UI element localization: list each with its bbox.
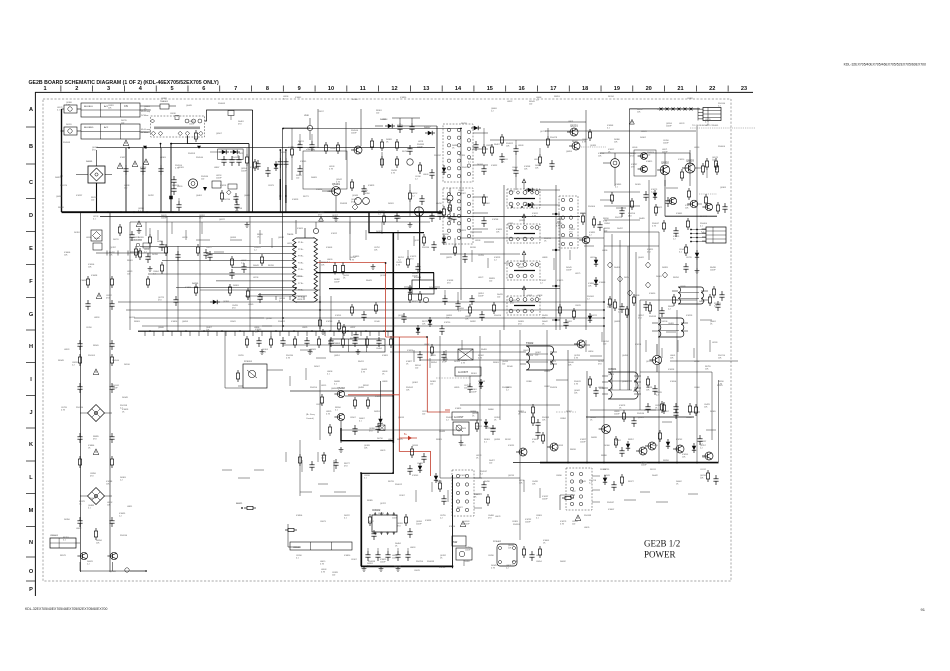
- svg-text:2.2: 2.2: [700, 443, 703, 445]
- svg-text:C6140: C6140: [374, 321, 380, 323]
- svg-text:F: F: [29, 279, 33, 285]
- svg-text:4.7K: 4.7K: [396, 264, 401, 266]
- svg-text:Q6268: Q6268: [230, 237, 236, 239]
- svg-text:0.1: 0.1: [134, 239, 137, 241]
- svg-text:0.1: 0.1: [138, 210, 141, 212]
- svg-text:L6572: L6572: [478, 277, 483, 279]
- svg-text:0.1: 0.1: [468, 161, 471, 163]
- svg-text:IC6504: IC6504: [670, 381, 677, 383]
- svg-text:2.2: 2.2: [668, 308, 671, 310]
- svg-text:L6553: L6553: [382, 119, 387, 121]
- svg-text:D6160: D6160: [604, 445, 610, 447]
- svg-text:P3 B+: P3 B+: [298, 256, 304, 258]
- svg-text:47U: 47U: [397, 525, 401, 527]
- svg-text:L6153: L6153: [590, 257, 595, 259]
- svg-text:L6935: L6935: [454, 387, 459, 389]
- svg-text:2.2: 2.2: [153, 273, 156, 275]
- svg-text:L6435: L6435: [584, 527, 589, 529]
- svg-text:R6350: R6350: [443, 199, 449, 201]
- svg-text:L6769: L6769: [712, 342, 717, 344]
- svg-text:0.1: 0.1: [359, 420, 362, 422]
- svg-text:R6525: R6525: [717, 385, 723, 387]
- svg-text:1000P: 1000P: [392, 517, 398, 519]
- svg-text:R6579: R6579: [60, 555, 66, 557]
- svg-text:Q6812: Q6812: [278, 237, 284, 239]
- svg-text:1000P: 1000P: [614, 413, 620, 415]
- svg-text:0.1: 0.1: [700, 225, 703, 227]
- svg-text:C6770: C6770: [686, 257, 692, 259]
- svg-text:2.2: 2.2: [506, 389, 509, 391]
- svg-text:1000P: 1000P: [216, 177, 222, 179]
- svg-text:R6621: R6621: [236, 503, 243, 505]
- svg-text:100: 100: [603, 343, 606, 345]
- svg-text:4.7K: 4.7K: [361, 371, 366, 373]
- svg-text:2.2: 2.2: [536, 99, 539, 101]
- svg-text:L6791: L6791: [418, 141, 423, 143]
- svg-text:IC6829: IC6829: [368, 185, 374, 187]
- svg-text:C6360: C6360: [694, 387, 700, 389]
- svg-text:IC6661: IC6661: [676, 213, 682, 215]
- svg-text:Q6613: Q6613: [608, 374, 614, 376]
- svg-text:47U: 47U: [628, 215, 632, 217]
- svg-text:D6349: D6349: [122, 397, 128, 399]
- svg-text:Q6441: Q6441: [638, 257, 644, 259]
- svg-text:R6377: R6377: [412, 301, 418, 303]
- svg-text:C6676: C6676: [575, 305, 581, 307]
- svg-text:C6635: C6635: [327, 191, 333, 193]
- svg-text:IC6228: IC6228: [220, 185, 226, 187]
- svg-text:Q6463: Q6463: [244, 195, 250, 197]
- svg-text:IC6850: IC6850: [344, 555, 350, 557]
- svg-text:Q6690: Q6690: [56, 196, 62, 198]
- svg-text:IC6906: IC6906: [296, 515, 302, 517]
- svg-text:2.2: 2.2: [446, 419, 449, 421]
- svg-text:0.1: 0.1: [458, 310, 461, 312]
- svg-text:P2 B+: P2 B+: [298, 249, 304, 251]
- svg-text:1000P: 1000P: [641, 464, 647, 466]
- svg-text:IC6393: IC6393: [425, 520, 431, 522]
- svg-text:ZD6839: ZD6839: [340, 203, 347, 205]
- svg-text:K: K: [29, 442, 33, 448]
- svg-text:ZD6754: ZD6754: [416, 561, 424, 563]
- svg-text:BLK/RED: BLK/RED: [84, 127, 94, 129]
- svg-text:ZD6926: ZD6926: [550, 387, 557, 389]
- svg-text:22: 22: [709, 86, 715, 92]
- svg-text:R6349: R6349: [58, 360, 64, 362]
- svg-text:L6831: L6831: [568, 121, 573, 123]
- svg-text:4.7K: 4.7K: [520, 263, 525, 265]
- svg-text:Q6772: Q6772: [540, 131, 546, 133]
- svg-text:ZD6170: ZD6170: [60, 185, 67, 187]
- svg-text:D6211: D6211: [113, 239, 119, 241]
- svg-text:IC6815: IC6815: [646, 161, 652, 163]
- svg-text:100: 100: [489, 280, 492, 282]
- svg-text:SW: SW: [453, 540, 458, 544]
- svg-text:C6255: C6255: [238, 355, 244, 357]
- svg-text:R6818: R6818: [570, 449, 576, 451]
- svg-text:IC6768: IC6768: [492, 219, 498, 221]
- svg-text:20: 20: [646, 86, 652, 92]
- svg-text:L6867: L6867: [214, 167, 219, 169]
- svg-text:100: 100: [604, 477, 607, 479]
- svg-text:Q6302: Q6302: [412, 382, 418, 384]
- svg-text:C6617: C6617: [318, 111, 324, 113]
- svg-text:Q6689: Q6689: [614, 321, 620, 323]
- svg-text:J: J: [29, 410, 32, 416]
- svg-text:03-06 amp: 03-06 amp: [141, 111, 150, 113]
- svg-text:2.2: 2.2: [120, 479, 123, 481]
- svg-text:C6941: C6941: [230, 321, 236, 323]
- svg-text:Q6787: Q6787: [110, 247, 116, 249]
- svg-text:IC6392: IC6392: [491, 165, 497, 167]
- svg-text:R6627: R6627: [457, 507, 463, 509]
- svg-text:1000P: 1000P: [112, 387, 118, 389]
- svg-text:0.1: 0.1: [615, 186, 618, 188]
- svg-text:R6733: R6733: [388, 481, 394, 483]
- svg-text:D6161: D6161: [656, 276, 662, 278]
- svg-text:IC6538: IC6538: [668, 369, 674, 371]
- svg-text:0.1: 0.1: [296, 557, 299, 559]
- svg-text:4.7K: 4.7K: [478, 357, 483, 359]
- svg-text:L6431: L6431: [527, 295, 532, 297]
- svg-text:Q6647: Q6647: [523, 350, 529, 352]
- svg-text:L: L: [29, 475, 33, 481]
- svg-text:D6992: D6992: [470, 321, 476, 323]
- svg-text:D6516: D6516: [124, 364, 130, 366]
- svg-text:0.1: 0.1: [63, 539, 66, 541]
- svg-text:G: G: [29, 312, 33, 318]
- svg-text:D6963: D6963: [233, 285, 239, 287]
- svg-text:Q6696: Q6696: [331, 388, 337, 390]
- svg-text:L6146: L6146: [632, 147, 637, 149]
- svg-text:C6380: C6380: [526, 381, 532, 383]
- svg-text:Q6226: Q6226: [129, 317, 135, 319]
- svg-text:100: 100: [201, 178, 204, 180]
- svg-text:R6773: R6773: [397, 125, 403, 127]
- svg-text:L6478: L6478: [495, 516, 500, 518]
- svg-text:GE2B BOARD SCHEMATIC DIAGRAM (: GE2B BOARD SCHEMATIC DIAGRAM (1 OF 2) (K…: [29, 80, 220, 86]
- svg-text:D6465: D6465: [639, 218, 645, 220]
- svg-text:21: 21: [677, 86, 683, 92]
- svg-text:Q6851: Q6851: [334, 355, 340, 357]
- svg-text:100: 100: [422, 413, 425, 415]
- svg-text:R6903: R6903: [134, 321, 140, 323]
- svg-text:D6782: D6782: [148, 195, 154, 197]
- svg-text:2.2: 2.2: [618, 311, 621, 313]
- svg-text:R6467: R6467: [494, 144, 500, 146]
- svg-text:1000P: 1000P: [710, 269, 716, 271]
- svg-text:91: 91: [921, 607, 926, 612]
- svg-text:IC6607: IC6607: [608, 509, 614, 511]
- svg-text:D6507: D6507: [314, 366, 320, 368]
- svg-text:2.2: 2.2: [443, 236, 446, 238]
- svg-text:C6507: C6507: [350, 417, 356, 419]
- svg-text:14: 14: [455, 86, 462, 92]
- svg-text:ZD6677: ZD6677: [89, 498, 96, 500]
- svg-text:Q6201: Q6201: [570, 124, 578, 128]
- svg-text:IC6175: IC6175: [557, 280, 563, 282]
- svg-text:L6396: L6396: [297, 299, 302, 301]
- svg-text:Q6199: Q6199: [638, 417, 644, 419]
- svg-text:5: 5: [171, 86, 174, 92]
- svg-text:L6389: L6389: [680, 286, 685, 288]
- svg-text:2.2: 2.2: [241, 262, 244, 264]
- svg-text:L6123: L6123: [679, 123, 684, 125]
- svg-text:ZD6196: ZD6196: [422, 247, 429, 249]
- svg-text:KDL-32EX705/40EX705/46EX705/52: KDL-32EX705/40EX705/46EX705/52EX705/60EX…: [844, 63, 926, 67]
- svg-text:ZD6606: ZD6606: [718, 146, 725, 148]
- svg-text:R6792: R6792: [461, 123, 467, 125]
- svg-text:2.2: 2.2: [491, 110, 494, 112]
- svg-text:Q6222: Q6222: [460, 445, 466, 447]
- svg-text:L6275: L6275: [575, 273, 580, 275]
- svg-text:100: 100: [572, 523, 575, 525]
- svg-text:1000P: 1000P: [334, 281, 340, 283]
- svg-text:2.2: 2.2: [378, 213, 381, 215]
- svg-text:D6860: D6860: [488, 409, 494, 411]
- svg-text:IC6327: IC6327: [120, 157, 126, 159]
- svg-text:IC6297: IC6297: [76, 195, 82, 197]
- svg-text:C6784: C6784: [94, 238, 101, 240]
- svg-text:1000P: 1000P: [525, 521, 531, 523]
- svg-text:IC6134: IC6134: [635, 344, 642, 346]
- svg-text:47U: 47U: [638, 317, 642, 319]
- svg-text:R6161: R6161: [127, 260, 133, 262]
- svg-text:4.7K: 4.7K: [391, 172, 396, 174]
- svg-text:C6363: C6363: [160, 157, 166, 159]
- svg-text:IC6697: IC6697: [288, 147, 294, 149]
- svg-text:ZD6189: ZD6189: [584, 515, 591, 517]
- svg-text:(B+ Freq: (B+ Freq: [306, 413, 315, 416]
- svg-text:1000P: 1000P: [663, 142, 669, 144]
- svg-text:4.7K: 4.7K: [560, 523, 565, 525]
- svg-text:0.1: 0.1: [607, 127, 610, 129]
- svg-text:0.1: 0.1: [344, 517, 347, 519]
- svg-text:100: 100: [502, 363, 505, 365]
- svg-text:IC6823: IC6823: [455, 408, 461, 410]
- svg-text:L6698: L6698: [634, 295, 639, 297]
- svg-text:L6309: L6309: [518, 145, 523, 147]
- svg-text:7: 7: [234, 86, 237, 92]
- svg-text:C6984: C6984: [560, 418, 567, 420]
- svg-text:IC6471: IC6471: [656, 207, 662, 209]
- svg-text:Q6859: Q6859: [566, 151, 572, 153]
- svg-text:L6997: L6997: [350, 327, 355, 329]
- svg-text:1000P: 1000P: [392, 557, 398, 559]
- svg-text:L6324: L6324: [694, 147, 700, 149]
- svg-text:D6710: D6710: [377, 438, 383, 440]
- svg-text:R6474: R6474: [358, 361, 365, 363]
- svg-text:D6649: D6649: [253, 265, 259, 267]
- svg-text:L6889: L6889: [382, 381, 387, 383]
- svg-text:Q6507: Q6507: [216, 133, 222, 135]
- svg-text:100: 100: [464, 387, 467, 389]
- svg-text:R6161: R6161: [471, 373, 477, 375]
- svg-text:R6708: R6708: [268, 265, 274, 267]
- svg-text:100: 100: [127, 273, 130, 275]
- svg-text:PC6402: PC6402: [493, 541, 502, 543]
- svg-text:Q6972: Q6972: [219, 219, 225, 221]
- svg-text:4.7K: 4.7K: [350, 259, 355, 261]
- svg-text:47U: 47U: [92, 149, 96, 151]
- svg-text:N: N: [29, 540, 33, 546]
- svg-text:D6302: D6302: [640, 137, 647, 139]
- svg-text:100: 100: [296, 177, 299, 179]
- svg-text:IC6243: IC6243: [412, 475, 418, 477]
- svg-text:2.2: 2.2: [254, 249, 257, 251]
- svg-text:R6983: R6983: [436, 439, 442, 441]
- svg-text:D6305: D6305: [710, 411, 716, 413]
- svg-text:ZD6736: ZD6736: [223, 199, 230, 201]
- svg-text:100: 100: [489, 462, 492, 464]
- svg-text:L6609: L6609: [423, 174, 428, 176]
- svg-text:Q6363: Q6363: [720, 187, 726, 189]
- svg-text:IC6359: IC6359: [292, 199, 298, 201]
- svg-text:Q6875: Q6875: [446, 257, 452, 259]
- svg-text:2.2: 2.2: [714, 305, 717, 307]
- svg-text:R6954: R6954: [431, 362, 438, 364]
- svg-text:L6159: L6159: [182, 237, 187, 239]
- svg-text:C6018: C6018: [170, 113, 176, 115]
- svg-text:ZD6540: ZD6540: [196, 157, 203, 159]
- svg-text:2.2: 2.2: [540, 282, 543, 284]
- svg-text:L6510: L6510: [281, 152, 286, 154]
- svg-text:4.7K: 4.7K: [532, 215, 537, 217]
- svg-text:4.7K: 4.7K: [175, 167, 180, 169]
- svg-text:D6463: D6463: [614, 267, 620, 269]
- svg-text:0.1: 0.1: [472, 149, 475, 151]
- svg-text:R6494: R6494: [436, 481, 443, 483]
- svg-text:2.2: 2.2: [283, 98, 286, 100]
- svg-text:C6894: C6894: [604, 223, 611, 225]
- svg-text:T6402: T6402: [526, 341, 534, 345]
- svg-text:L6180: L6180: [86, 237, 91, 239]
- svg-text:R6245: R6245: [504, 263, 510, 265]
- svg-text:C6549: C6549: [580, 481, 586, 483]
- svg-text:C6570: C6570: [641, 131, 647, 133]
- svg-text:1000P: 1000P: [380, 561, 386, 563]
- svg-text:IC6402: IC6402: [372, 508, 381, 512]
- svg-text:D6201: D6201: [192, 283, 199, 285]
- svg-text:1000P: 1000P: [417, 146, 423, 148]
- svg-text:Q6343: Q6343: [460, 428, 466, 430]
- svg-text:1000P: 1000P: [566, 269, 572, 271]
- svg-text:GE2B 1/2: GE2B 1/2: [644, 539, 680, 549]
- svg-text:R6903: R6903: [493, 362, 499, 364]
- svg-text:Q6110: Q6110: [266, 318, 272, 320]
- svg-text:ZD6105: ZD6105: [88, 355, 95, 357]
- svg-text:1000P: 1000P: [189, 123, 195, 125]
- svg-text:ZD6536: ZD6536: [637, 413, 644, 415]
- svg-text:100: 100: [497, 296, 500, 298]
- svg-text:IC6976: IC6976: [185, 287, 191, 289]
- svg-text:VDR: VDR: [304, 115, 309, 117]
- svg-text:R6957: R6957: [628, 439, 634, 441]
- svg-text:H: H: [29, 344, 33, 350]
- svg-text:2.2: 2.2: [72, 364, 75, 366]
- svg-text:0.1: 0.1: [327, 261, 330, 263]
- svg-text:R6294: R6294: [673, 277, 680, 279]
- svg-text:C6489: C6489: [417, 463, 423, 465]
- svg-text:Control): Control): [306, 417, 314, 420]
- svg-text:R6318: R6318: [470, 247, 476, 249]
- svg-text:R6505: R6505: [93, 345, 99, 347]
- svg-text:ZD6699: ZD6699: [427, 561, 434, 563]
- svg-text:C6993: C6993: [378, 513, 384, 515]
- svg-text:L6116: L6116: [534, 159, 539, 161]
- svg-text:2.2: 2.2: [656, 394, 659, 396]
- svg-text:P: P: [29, 587, 33, 593]
- svg-text:Q6785: Q6785: [430, 355, 436, 357]
- svg-text:L6478: L6478: [388, 439, 393, 441]
- svg-text:R6675: R6675: [397, 439, 403, 441]
- svg-text:1000P: 1000P: [416, 523, 422, 525]
- svg-text:IC6234: IC6234: [375, 396, 382, 398]
- svg-text:4.7K: 4.7K: [574, 357, 579, 359]
- svg-text:13: 13: [423, 86, 429, 92]
- svg-text:100: 100: [529, 103, 532, 105]
- svg-text:ZD6416: ZD6416: [494, 315, 501, 317]
- svg-text:47U: 47U: [344, 465, 348, 467]
- svg-text:IC6789: IC6789: [326, 321, 332, 323]
- svg-text:47U: 47U: [447, 282, 451, 284]
- svg-text:100: 100: [647, 154, 650, 156]
- svg-text:0.1: 0.1: [57, 109, 60, 111]
- svg-text:2.2: 2.2: [506, 567, 509, 569]
- svg-text:1000P: 1000P: [464, 523, 470, 525]
- svg-text:2.2: 2.2: [119, 515, 122, 517]
- svg-text:IC6451: IC6451: [297, 228, 303, 230]
- svg-text:2: 2: [75, 86, 78, 92]
- svg-text:D6350: D6350: [364, 193, 370, 195]
- svg-text:2.2: 2.2: [589, 482, 592, 484]
- svg-text:R6853: R6853: [554, 96, 560, 98]
- svg-text:1000P: 1000P: [351, 132, 357, 134]
- svg-text:D: D: [29, 213, 33, 219]
- svg-text:2.2: 2.2: [589, 234, 592, 236]
- svg-text:4.7K: 4.7K: [321, 571, 326, 573]
- svg-text:2.2: 2.2: [415, 178, 418, 180]
- svg-text:ZD6663: ZD6663: [218, 103, 225, 105]
- svg-text:D6744: D6744: [477, 164, 484, 166]
- svg-text:ZD6196: ZD6196: [76, 407, 83, 409]
- svg-text:D6442: D6442: [652, 475, 658, 477]
- svg-text:D6118: D6118: [74, 232, 80, 234]
- svg-text:8: 8: [266, 86, 269, 92]
- svg-text:L6530: L6530: [296, 276, 301, 278]
- svg-text:3: 3: [107, 86, 110, 92]
- svg-text:ZD6949: ZD6949: [63, 142, 70, 144]
- svg-text:9: 9: [298, 86, 301, 92]
- svg-text:R6132: R6132: [505, 439, 511, 441]
- svg-text:D6542: D6542: [368, 521, 374, 523]
- svg-text:Q6598: Q6598: [412, 445, 418, 447]
- svg-text:47U: 47U: [318, 214, 322, 216]
- svg-text:1000P: 1000P: [666, 125, 672, 127]
- svg-text:R6134: R6134: [608, 96, 615, 98]
- svg-text:ZD6743: ZD6743: [394, 566, 401, 568]
- svg-text:47U: 47U: [631, 166, 635, 168]
- svg-text:Q6189: Q6189: [590, 145, 596, 147]
- svg-text:L6694: L6694: [537, 295, 543, 297]
- svg-text:47U: 47U: [106, 297, 110, 299]
- svg-text:100: 100: [476, 428, 479, 430]
- svg-text:2.2: 2.2: [673, 238, 676, 240]
- svg-text:C6742: C6742: [700, 469, 707, 471]
- svg-text:12: 12: [391, 86, 397, 92]
- svg-text:IC6259: IC6259: [686, 315, 692, 317]
- svg-text:47U: 47U: [238, 123, 242, 125]
